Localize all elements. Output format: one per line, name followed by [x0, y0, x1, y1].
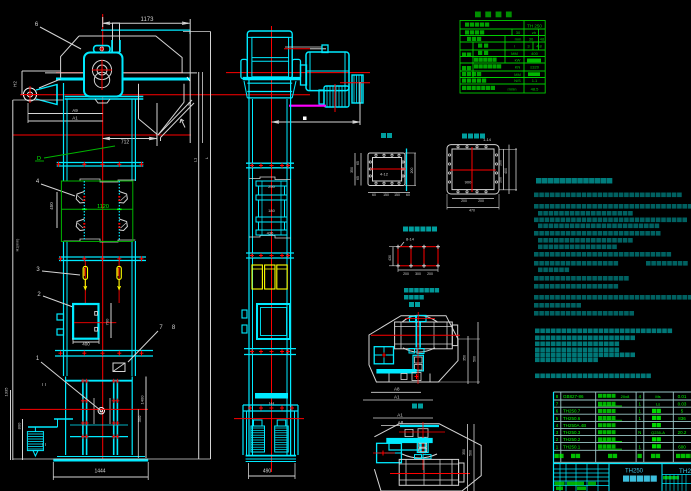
svg-text:500: 500 [473, 356, 477, 362]
svg-text:700: 700 [105, 318, 110, 325]
svg-text:500: 500 [469, 450, 473, 456]
svg-text:250: 250 [268, 184, 275, 189]
svg-text:1.1: 1.1 [532, 78, 538, 83]
svg-text:TH250.7: TH250.7 [563, 409, 581, 414]
svg-text:200: 200 [461, 199, 467, 203]
svg-text:TH250.6: TH250.6 [563, 416, 581, 421]
svg-text:A9: A9 [72, 108, 78, 113]
svg-text:350: 350 [463, 355, 467, 361]
svg-text:mm: mm [515, 37, 522, 42]
svg-text:Ms: Ms [655, 394, 660, 399]
svg-text:900: 900 [465, 180, 472, 185]
svg-text:N/S: N/S [514, 78, 521, 83]
svg-text:30: 30 [529, 37, 534, 42]
svg-text:48: 48 [540, 37, 545, 42]
svg-text:200: 200 [403, 272, 409, 276]
svg-text:450: 450 [49, 202, 54, 210]
svg-text:A8: A8 [394, 387, 400, 392]
svg-text:kW: kW [515, 58, 521, 63]
svg-text:150: 150 [394, 193, 400, 197]
svg-text:180: 180 [268, 208, 275, 213]
svg-text:200: 200 [478, 199, 484, 203]
svg-text:800: 800 [17, 422, 22, 429]
svg-text:I I: I I [42, 382, 46, 387]
svg-text:N: N [638, 430, 641, 435]
svg-text:H2: H2 [13, 81, 18, 87]
svg-text:436: 436 [267, 231, 274, 236]
svg-text:350: 350 [462, 449, 466, 455]
svg-text:TH 250: TH 250 [527, 24, 542, 29]
svg-text:≥320: ≥320 [530, 64, 540, 69]
svg-text:78: 78 [187, 101, 192, 106]
svg-text:48.5: 48.5 [531, 87, 540, 92]
svg-text:600: 600 [678, 444, 686, 449]
svg-text:4-12: 4-12 [380, 172, 389, 177]
svg-text:4.8: 4.8 [536, 44, 542, 49]
svg-text:Q235-A: Q235-A [651, 430, 665, 435]
svg-text:TH250.1: TH250.1 [563, 444, 581, 449]
svg-text:8-14: 8-14 [406, 237, 415, 242]
svg-text:r/min: r/min [508, 87, 517, 92]
svg-text:A1: A1 [394, 395, 400, 400]
svg-text:200: 200 [410, 168, 414, 174]
svg-text:20.2: 20.2 [678, 430, 687, 435]
svg-text:400: 400 [504, 168, 508, 174]
svg-text:490: 490 [263, 469, 272, 475]
svg-text:TH250.2: TH250.2 [563, 437, 581, 442]
svg-text:1400: 1400 [140, 395, 145, 405]
svg-text:0.01: 0.01 [678, 394, 687, 399]
svg-text:350: 350 [350, 167, 354, 173]
svg-text:L1: L1 [193, 157, 198, 162]
svg-text:200: 200 [499, 160, 503, 166]
svg-text:712: 712 [121, 140, 130, 146]
svg-text:65: 65 [356, 161, 360, 165]
svg-text:MM: MM [514, 72, 521, 77]
svg-text:H1(mm): H1(mm) [16, 239, 20, 252]
svg-text:200: 200 [499, 177, 503, 183]
svg-text:zh: zh [532, 30, 536, 35]
svg-text:30: 30 [516, 30, 521, 35]
svg-text:350: 350 [137, 415, 142, 422]
svg-text:60: 60 [406, 193, 410, 197]
svg-text:KN: KN [515, 64, 521, 69]
svg-text:GB827-86: GB827-86 [563, 394, 584, 399]
svg-text:A1: A1 [72, 116, 78, 121]
svg-text:1-14: 1-14 [483, 137, 492, 142]
svg-text:1173: 1173 [141, 17, 155, 23]
svg-text:TH250.3: TH250.3 [563, 430, 581, 435]
svg-text:836: 836 [678, 416, 686, 421]
svg-text:400: 400 [531, 51, 538, 56]
svg-text:200: 200 [427, 272, 433, 276]
svg-text:430: 430 [388, 255, 392, 261]
svg-text:470: 470 [469, 208, 475, 212]
svg-text:MM: MM [511, 51, 518, 56]
svg-text:1335: 1335 [4, 387, 9, 397]
svg-text:TH250A.4B: TH250A.4B [563, 423, 586, 428]
svg-text:60: 60 [372, 193, 376, 197]
svg-text:TH2: TH2 [679, 468, 691, 475]
svg-text:150: 150 [383, 193, 389, 197]
svg-text:Ls: Ls [656, 402, 660, 407]
svg-text:1444: 1444 [94, 469, 105, 475]
svg-text:20x8: 20x8 [621, 394, 630, 399]
svg-text:TH250: TH250 [625, 469, 644, 475]
svg-text:l: l [514, 44, 515, 49]
svg-text:65: 65 [356, 176, 360, 180]
svg-text:0.03: 0.03 [678, 402, 687, 407]
svg-text:300: 300 [415, 272, 421, 276]
svg-text:1120: 1120 [97, 204, 109, 210]
svg-text:A1: A1 [397, 413, 403, 418]
